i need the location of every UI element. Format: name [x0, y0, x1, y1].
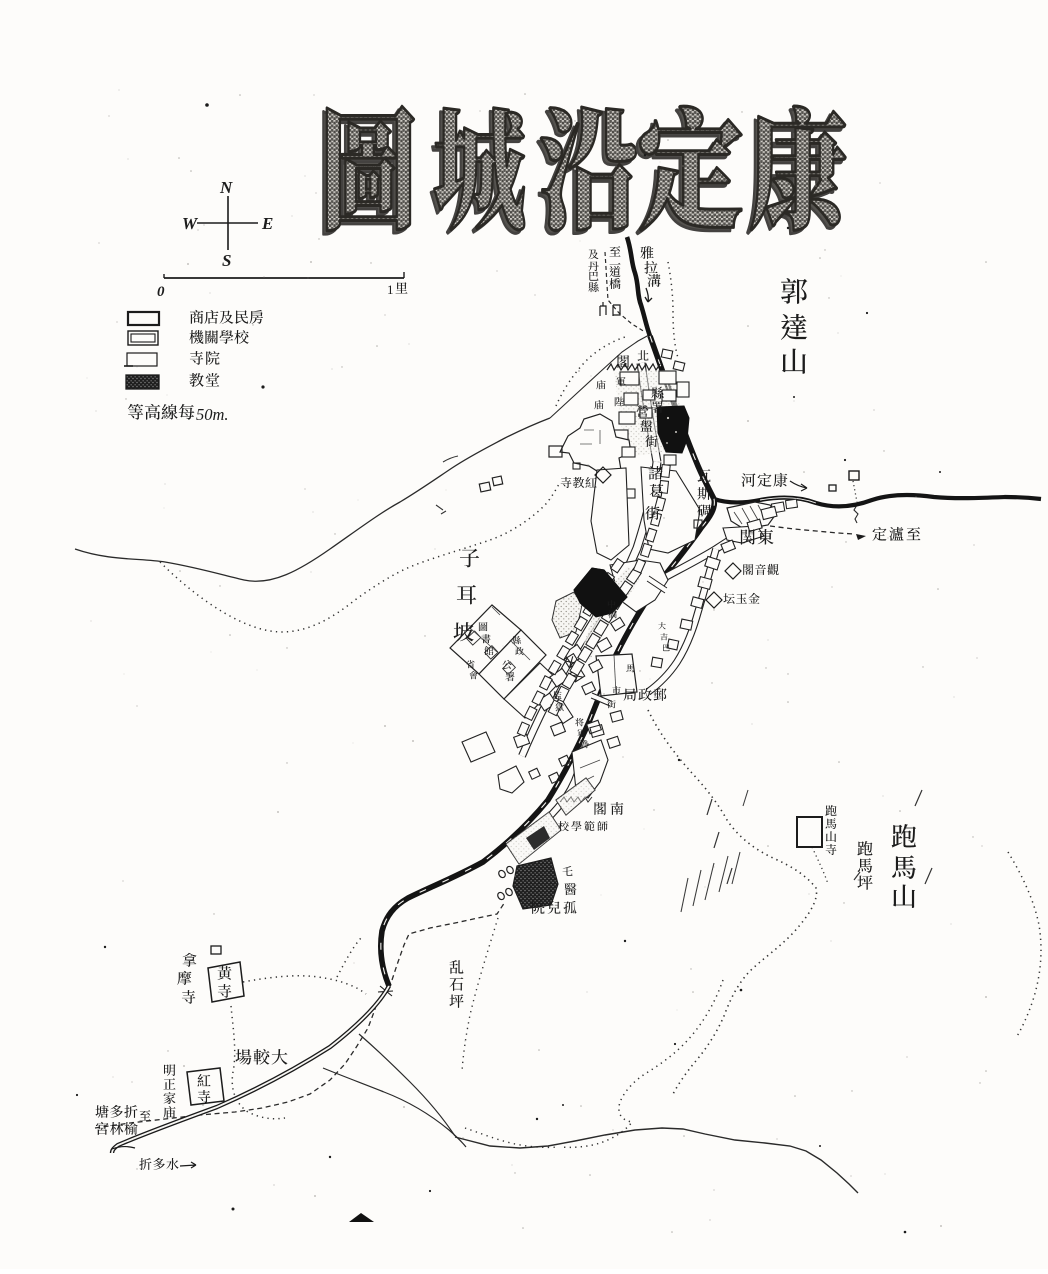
svg-text:W: W — [182, 214, 199, 233]
svg-text:50m.: 50m. — [196, 405, 229, 424]
svg-text:1: 1 — [387, 282, 394, 297]
svg-text:S: S — [222, 251, 231, 270]
svg-text:N: N — [219, 178, 233, 197]
svg-text:E: E — [261, 214, 273, 233]
svg-text:0: 0 — [157, 284, 165, 300]
